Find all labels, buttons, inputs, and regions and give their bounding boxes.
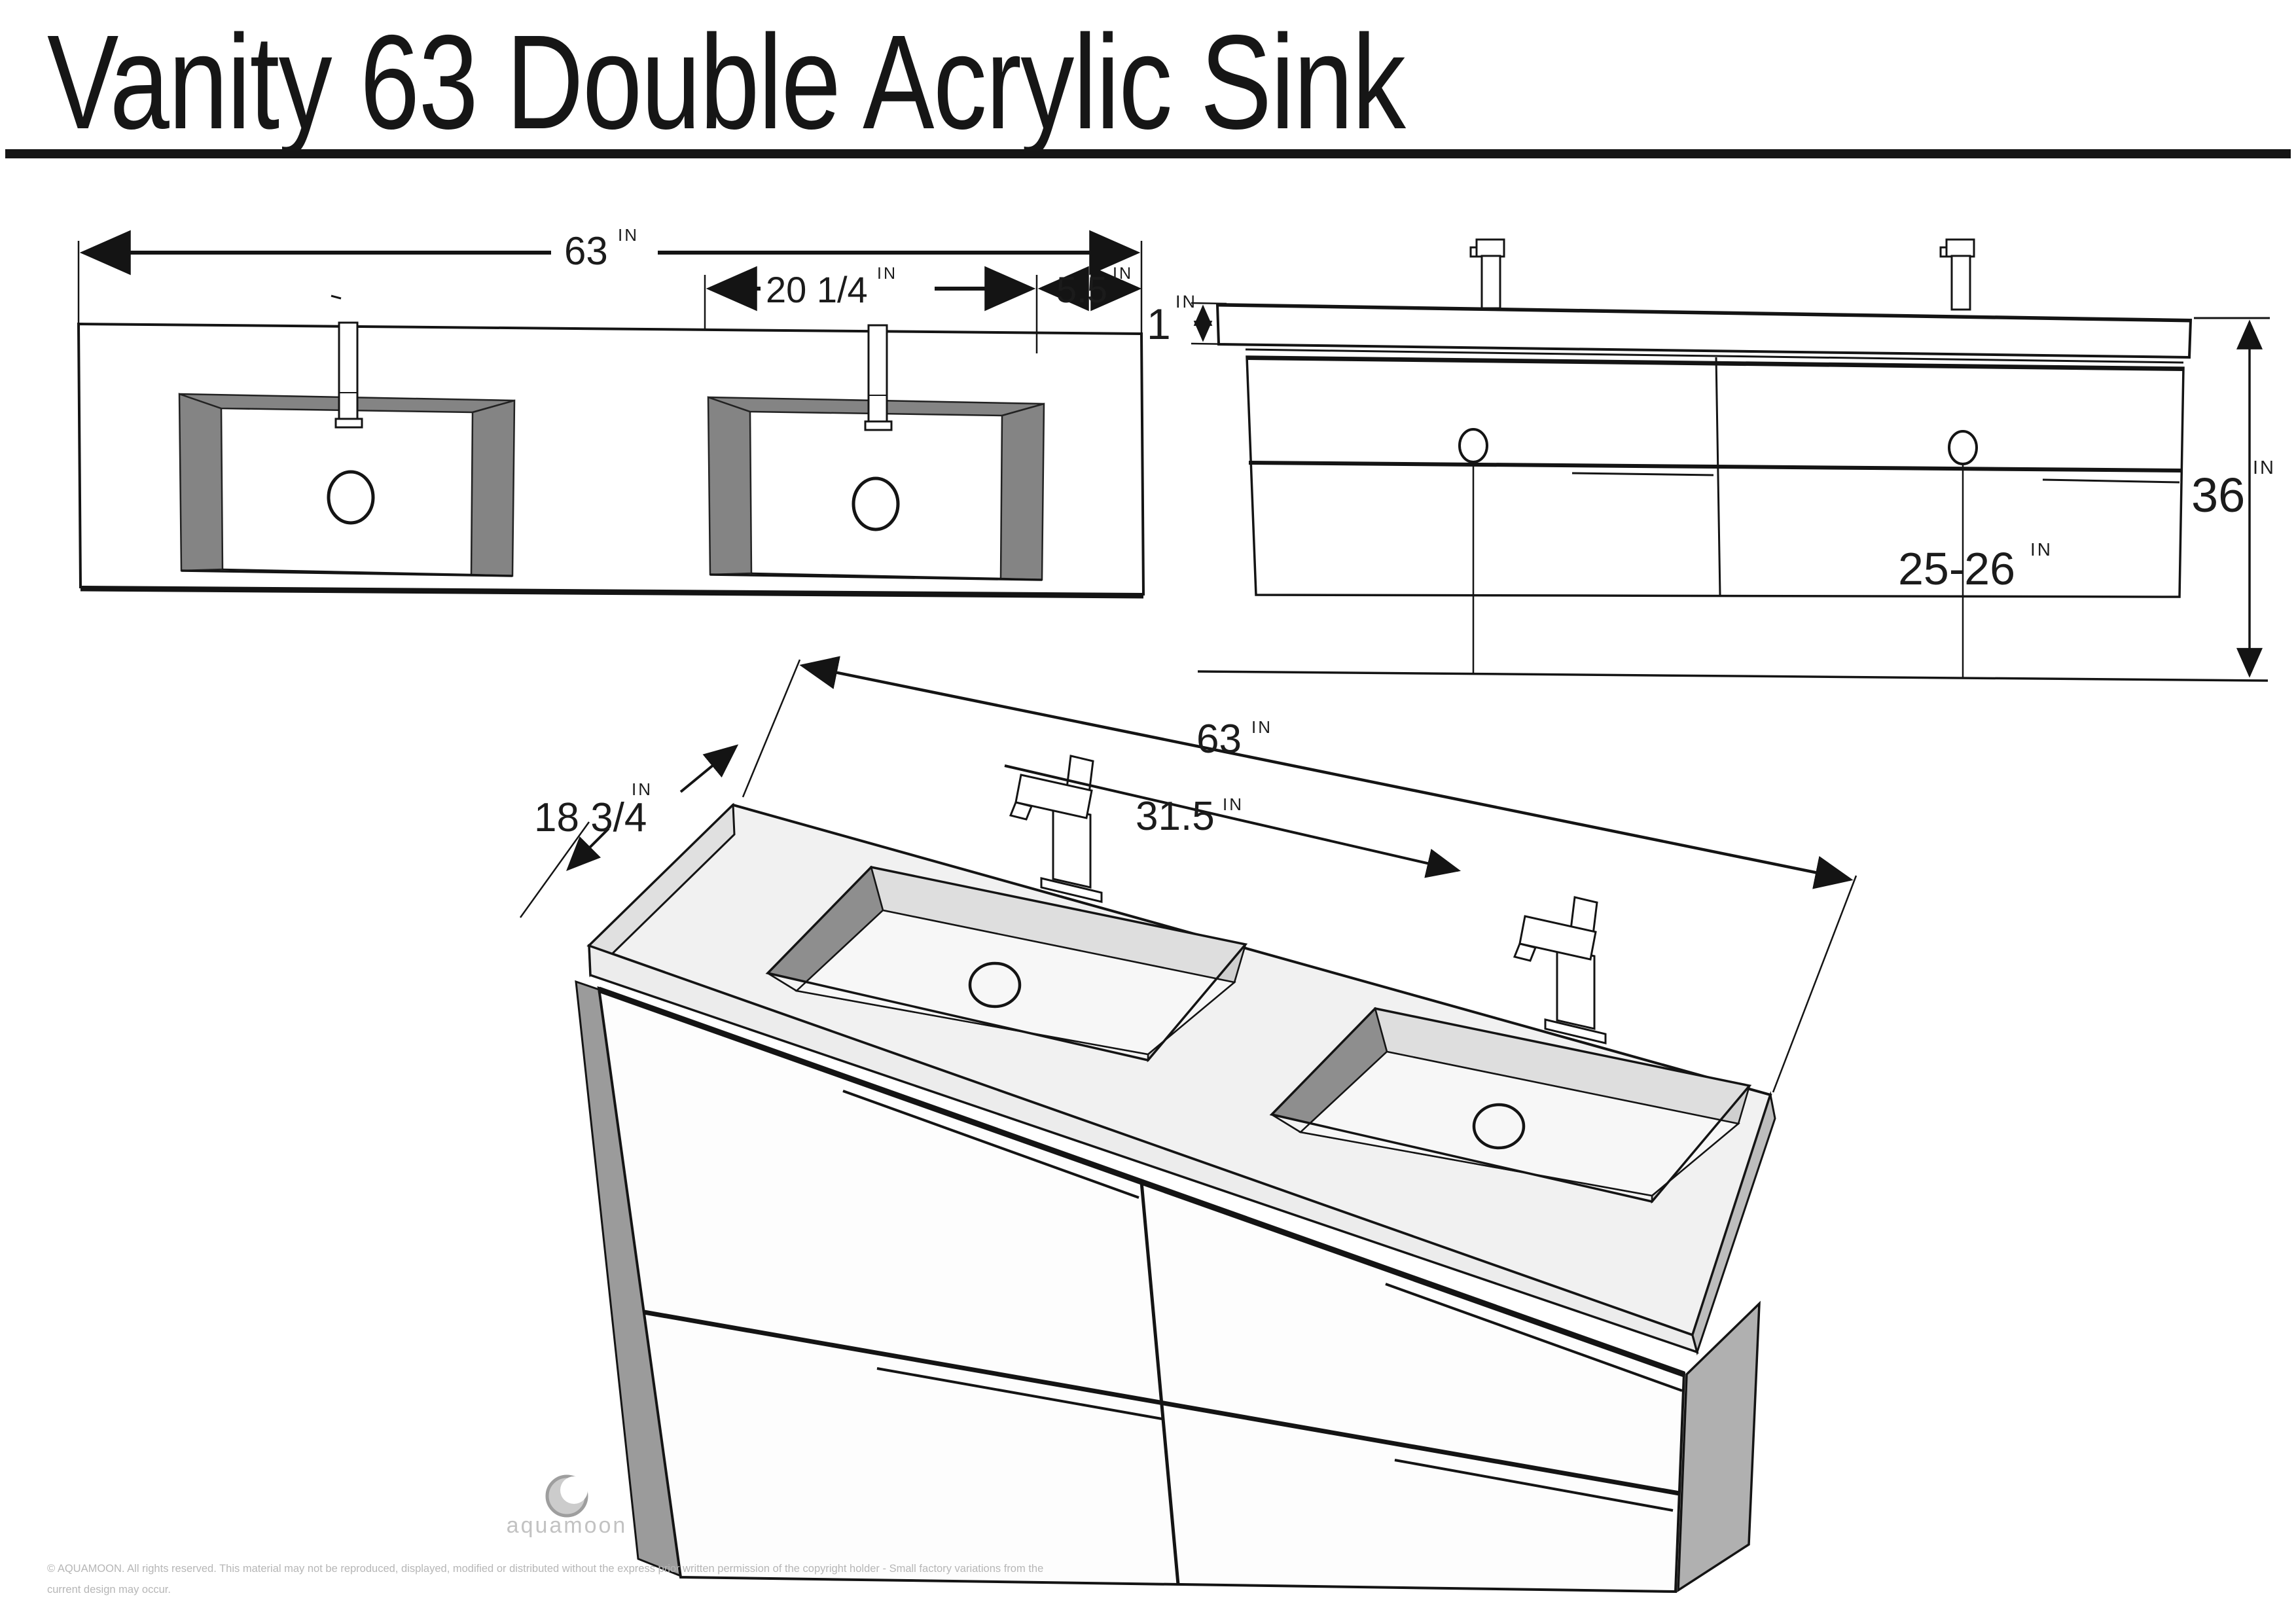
unit-label: IN (877, 264, 897, 283)
drain-hole (970, 963, 1020, 1007)
unit-label: IN (1113, 264, 1133, 283)
extension-line (743, 660, 800, 797)
floor-line (1198, 671, 2268, 681)
basin-wall-left (708, 397, 751, 575)
faucet-tip-mark (331, 296, 341, 298)
dim-label-top-width: 63 (564, 229, 608, 273)
unit-label: IN (1223, 794, 1244, 814)
faucet-stem (339, 323, 357, 419)
dim-label-persp-width: 63 (1196, 717, 1242, 762)
faucet-spout-tip (865, 421, 891, 430)
basin-wall-right (1001, 404, 1044, 580)
dimension-line-width (802, 666, 1850, 880)
brand-name: aquamoon (507, 1513, 628, 1538)
unit-label: IN (632, 779, 653, 799)
dim-label-height: 36 (2191, 468, 2245, 522)
copyright-line-1: © AQUAMOON. All rights reserved. This ma… (47, 1563, 1043, 1575)
front-faucet-right (1941, 240, 1974, 310)
unit-label: IN (2030, 539, 2053, 560)
basin-wall-left (179, 394, 223, 571)
title-divider (5, 149, 2291, 158)
dim-label-drain-height: 25-26 (1898, 543, 2015, 594)
drain-knockout (1460, 429, 1487, 462)
front-cabinet (1247, 357, 2183, 597)
faucet-stem (869, 325, 887, 421)
drain-hole (329, 472, 373, 523)
dim-label-depth: 18 3/4 (534, 795, 647, 840)
unit-label: IN (1175, 292, 1197, 312)
extension-line (1773, 876, 1856, 1092)
unit-label: IN (1251, 717, 1272, 737)
dim-label-faucet-spacing: 31.5 (1136, 794, 1215, 839)
unit-label: IN (2253, 457, 2276, 478)
top-view: 63 IN 20 1/4 IN 5.5 IN (79, 225, 1143, 596)
faucet-spout (1515, 944, 1535, 961)
dim-label-thickness: 1 (1147, 300, 1171, 348)
extension-line (1191, 344, 1234, 344)
drain-knockout (1949, 431, 1977, 464)
front-faucet-left (1471, 240, 1504, 308)
faucet-body (1952, 256, 1970, 310)
dim-label-sink-width: 20 1/4 (766, 269, 868, 310)
page-title: Vanity 63 Double Acrylic Sink (47, 8, 1407, 158)
spec-sheet-drawing: Vanity 63 Double Acrylic Sink (0, 0, 2296, 1623)
faucet-spout (1011, 802, 1031, 819)
aquamoon-logo: aquamoon (507, 1476, 628, 1538)
faucet-spout-tip (336, 419, 362, 427)
persp-faucet-right (1515, 897, 1605, 1043)
dim-label-edge-offset: 5.5 (1056, 269, 1107, 310)
moon-icon-crescent (560, 1476, 588, 1504)
dimension-line-depth (681, 746, 736, 792)
copyright-line-2: current design may occur. (47, 1584, 171, 1596)
title-block: Vanity 63 Double Acrylic Sink (5, 8, 2291, 158)
faucet-head (1477, 240, 1504, 257)
drain-hole (853, 478, 898, 529)
perspective-view: 63 IN 31.5 IN 18 3/4 IN (520, 660, 1856, 1592)
faucet-head (1946, 240, 1974, 257)
drain-hole (1474, 1105, 1524, 1148)
top-view-counter (79, 324, 1143, 594)
unit-label: IN (618, 225, 639, 245)
front-view: 36 IN 1 IN 25-26 IN (1147, 240, 2276, 681)
spec-sheet-page: Vanity 63 Double Acrylic Sink (0, 0, 2296, 1623)
basin-wall-right (471, 401, 514, 576)
faucet-body (1482, 256, 1500, 308)
